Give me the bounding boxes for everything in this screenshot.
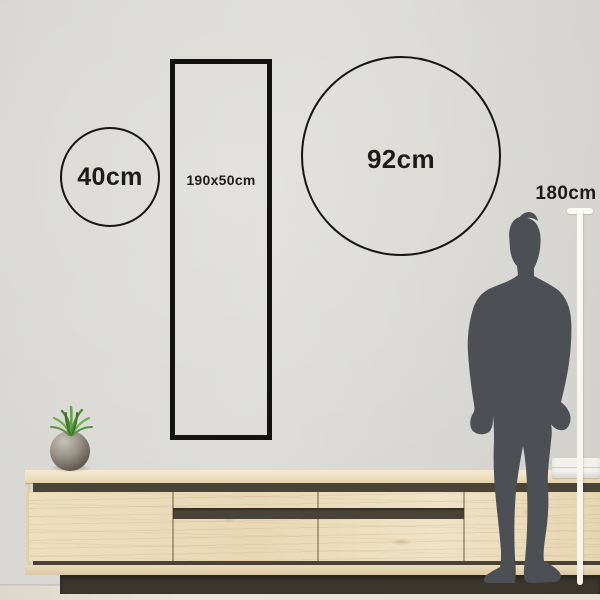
height-ruler-line xyxy=(577,209,583,585)
potted-plant xyxy=(42,403,100,473)
sideboard-doors xyxy=(29,492,600,561)
sideboard-bottom-board xyxy=(25,565,600,575)
drawer-handle-groove xyxy=(173,508,464,519)
person-height-label: 180cm xyxy=(524,183,600,205)
size-guide-scene: 40cm 190x50cm 92cm 180cm xyxy=(0,0,600,600)
door-seam xyxy=(172,492,174,561)
plant-pot xyxy=(50,431,90,471)
sideboard-plinth xyxy=(60,575,600,594)
size-label-92cm: 92cm xyxy=(367,137,435,175)
size-option-circle-92: 92cm xyxy=(301,56,501,256)
sideboard xyxy=(25,470,600,594)
size-label-190x50cm: 190x50cm xyxy=(186,172,255,188)
size-option-rect-190x50: 190x50cm xyxy=(170,59,272,440)
sideboard-top xyxy=(25,470,600,483)
door-seam xyxy=(463,492,465,561)
door-seam xyxy=(317,492,319,561)
size-option-circle-40: 40cm xyxy=(60,127,160,227)
sideboard-top-recess xyxy=(33,483,600,492)
plant-leaves-icon xyxy=(46,403,96,437)
decor-box xyxy=(552,458,600,478)
size-label-40cm: 40cm xyxy=(77,163,143,192)
